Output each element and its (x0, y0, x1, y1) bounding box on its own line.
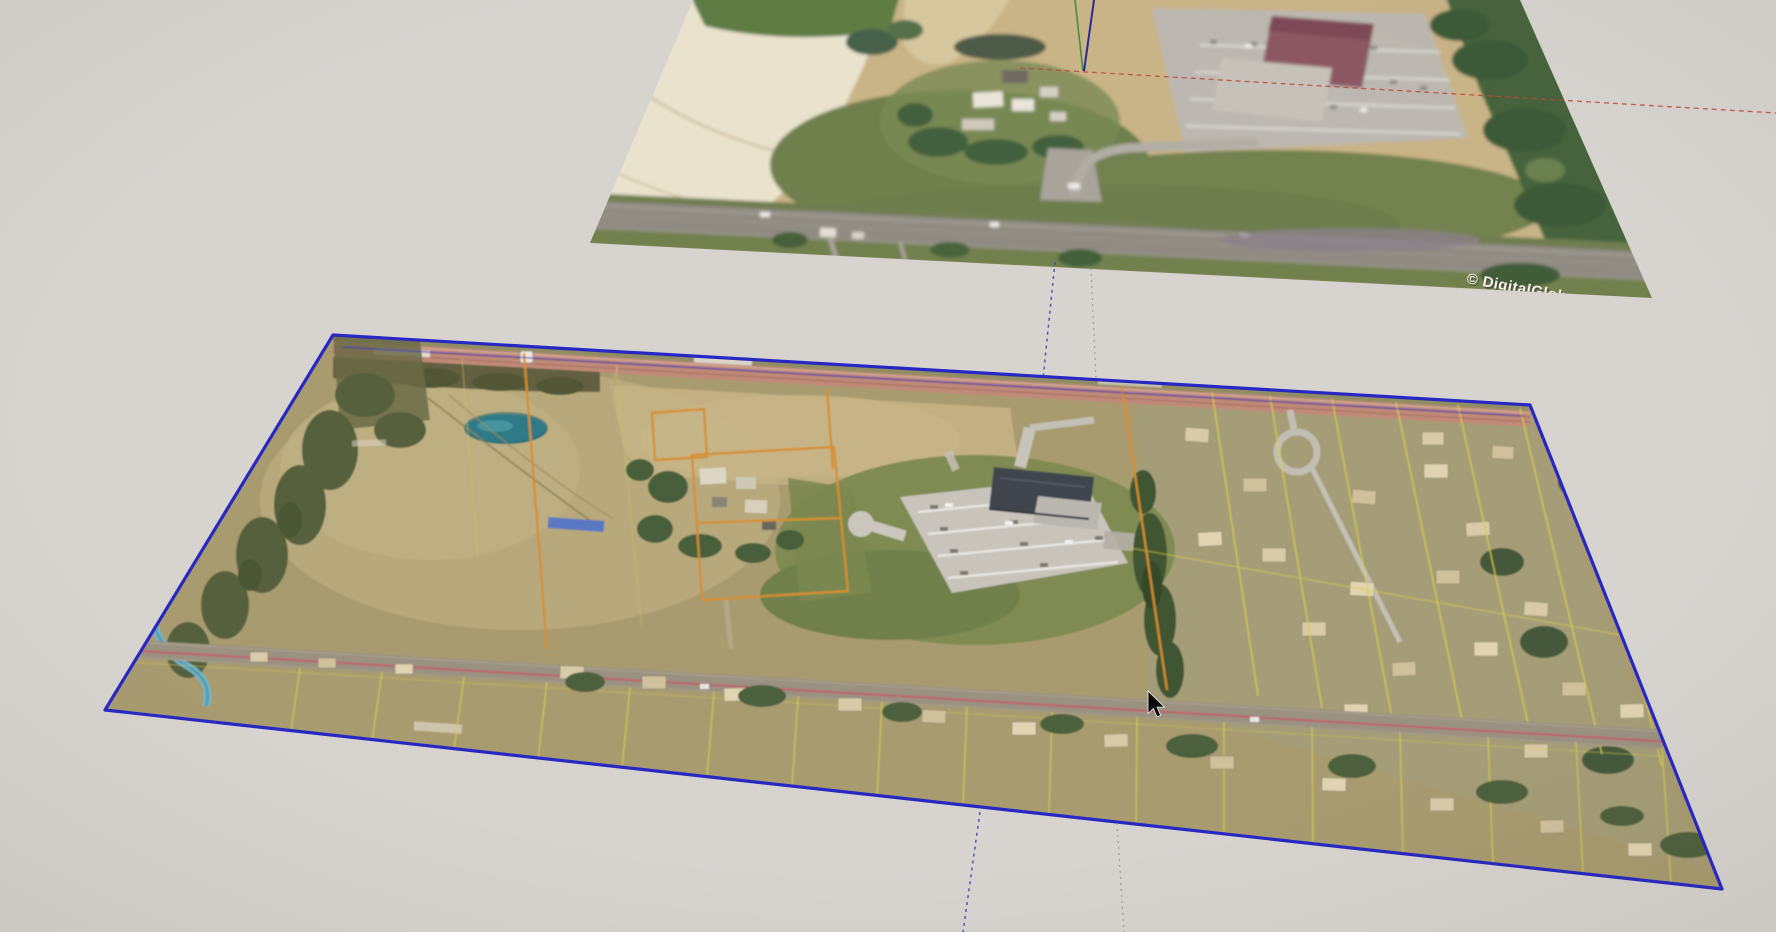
scene-canvas[interactable]: © DigitalGlobe © DigitalGlobe (0, 0, 1776, 932)
3d-modeling-viewport[interactable]: © DigitalGlobe © DigitalGlobe (0, 0, 1776, 932)
